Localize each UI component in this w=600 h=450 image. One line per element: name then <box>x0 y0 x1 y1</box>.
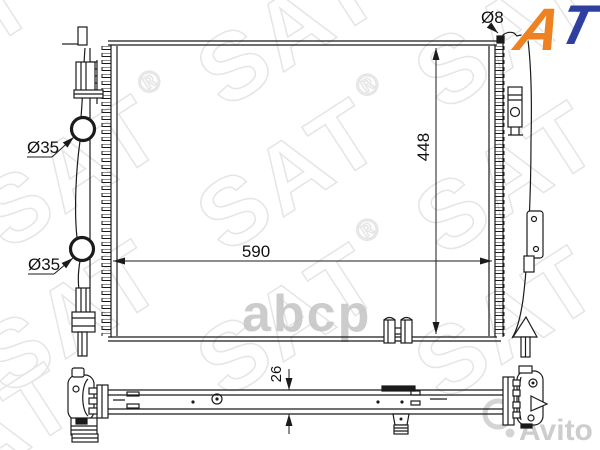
right-end-tooth <box>513 380 520 386</box>
left-top-tab <box>78 27 87 45</box>
right-end-cap-dot <box>532 382 535 385</box>
dim-pipe-label: Ø8 <box>481 8 504 27</box>
left-end-top-tab <box>72 368 84 377</box>
center-bracket-foot <box>394 425 408 434</box>
dim-port-lower-label: Ø35 <box>28 255 60 274</box>
upper-port-circle <box>72 118 95 141</box>
left-end-foot-pad <box>76 419 87 424</box>
center-bracket-hole <box>400 418 403 421</box>
dim-core-thickness-label: 26 <box>268 366 285 383</box>
right-end-pad <box>521 424 532 428</box>
bottom-mount-left-post <box>384 320 395 343</box>
left-lower-bracket-base <box>72 312 95 332</box>
right-end-tooth <box>513 412 520 418</box>
left-end-tooth <box>89 398 97 404</box>
abcp-watermark: abcp <box>242 285 371 343</box>
rivet-dot <box>400 400 403 403</box>
avito-logo-dot <box>506 429 515 438</box>
center-bracket-flange <box>382 386 415 391</box>
bar-slot <box>127 404 139 408</box>
bottom-mount-right-post <box>401 320 412 343</box>
rivet-dot <box>376 400 379 403</box>
radiator-drawing-page: SAT SAT® SAT SAT® SAT® SAT SAT SAT® SAT … <box>0 0 600 450</box>
left-end-cap-hole <box>73 386 79 392</box>
right-end-tooth <box>513 390 520 396</box>
right-end-tooth <box>513 402 520 408</box>
dim-port-upper-label: Ø35 <box>27 138 59 157</box>
lower-port-circle <box>71 238 94 261</box>
left-end-tooth <box>89 388 97 394</box>
left-end-tooth <box>89 408 97 414</box>
bar-dashes <box>113 399 447 400</box>
sat-watermark: SAT <box>0 0 55 138</box>
radiator-diagram: SAT SAT® SAT SAT® SAT® SAT SAT SAT® SAT … <box>0 0 600 450</box>
bar-slot <box>411 401 420 405</box>
dim-core-width-label: 590 <box>242 242 270 261</box>
dim-core-height-label: 448 <box>414 133 433 161</box>
bleed-pipe-fitting <box>497 36 504 43</box>
right-mid-bracket-tab <box>524 256 534 272</box>
right-end-top-tab <box>519 366 532 373</box>
rivet-dot <box>191 400 194 403</box>
left-lower-bracket <box>76 288 90 314</box>
rivet-dot <box>215 397 218 400</box>
